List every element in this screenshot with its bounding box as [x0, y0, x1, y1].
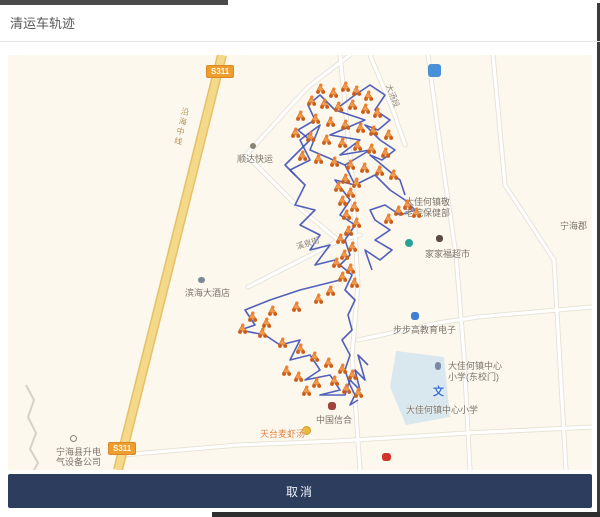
map-label-school-gate-2: 小学(东校门): [448, 372, 499, 382]
poi-icon-blue-square: [428, 64, 441, 77]
map-label-bbk: 步步高教育电子: [393, 325, 456, 335]
cancel-button[interactable]: 取消: [8, 474, 592, 508]
map-label-credit-union: 中国信合: [316, 415, 352, 425]
poi-icon-company: [70, 435, 77, 442]
page-title: 清运车轨迹: [10, 13, 75, 32]
map-label-food: 天台麦虾汤: [260, 429, 305, 439]
map-label-hotel: 滨海大酒店: [185, 288, 230, 298]
header-divider: [0, 41, 600, 42]
river-line: [26, 385, 38, 470]
poi-icon-express: [250, 143, 256, 149]
window-edge-top: [0, 0, 228, 5]
map-roads-layer: [8, 55, 592, 470]
map-symbol-school: 文: [433, 387, 444, 397]
map-canvas[interactable]: S311 S311 顺达快运 滨海大酒店 大佳何镇敬 老院保健部 家家福超市 步…: [8, 55, 592, 470]
road-badge-s311-bottom: S311: [108, 442, 136, 455]
main-road: [118, 55, 222, 470]
poi-icon-red-case: [382, 453, 391, 461]
map-label-company-1: 宁海县升电: [56, 447, 101, 457]
window-edge-bottom: [212, 512, 600, 517]
poi-icon-teal-circle: [405, 239, 413, 247]
poi-icon-supermarket: [436, 235, 443, 242]
poi-icon-bbk: [411, 312, 419, 320]
map-label-school-gate-1: 大佳何镇中心: [448, 361, 502, 371]
map-label-school: 大佳何镇中心小学: [406, 405, 478, 415]
map-label-supermarket: 家家福超市: [425, 249, 470, 259]
map-label-company-2: 气设备公司: [56, 457, 101, 467]
poi-icon-hotel: [198, 277, 205, 283]
poi-icon-school-gate: [435, 362, 441, 370]
map-label-ninghai: 宁海郡: [560, 221, 587, 231]
poi-icon-credit-union: [328, 402, 336, 410]
map-label-care-home-1: 大佳何镇敬: [405, 197, 450, 207]
map-label-care-home-2: 老院保健部: [405, 208, 450, 218]
road-badge-s311-top: S311: [206, 65, 234, 78]
map-label-express: 顺达快运: [237, 154, 273, 164]
